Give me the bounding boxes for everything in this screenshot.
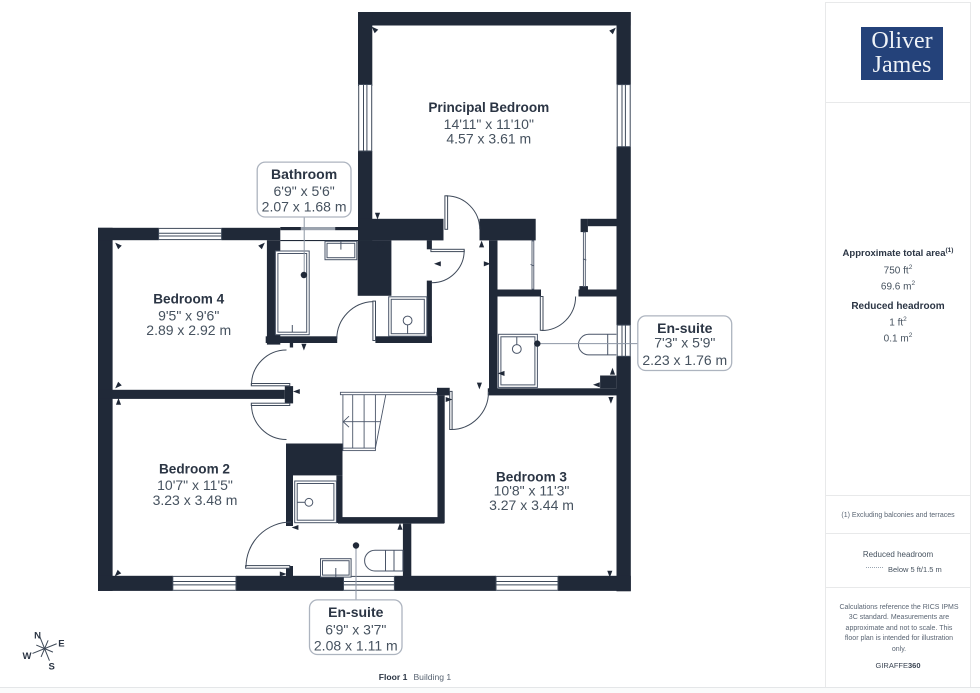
svg-text:3.27 x 3.44 m: 3.27 x 3.44 m bbox=[489, 497, 574, 513]
svg-text:2.89 x 2.92 m: 2.89 x 2.92 m bbox=[146, 322, 231, 338]
svg-text:Bathroom: Bathroom bbox=[271, 166, 337, 182]
svg-text:3.23 x 3.48 m: 3.23 x 3.48 m bbox=[153, 492, 238, 508]
svg-text:W: W bbox=[23, 651, 32, 662]
svg-text:En-suite: En-suite bbox=[328, 604, 383, 620]
svg-text:2.23 x 1.76 m: 2.23 x 1.76 m bbox=[642, 352, 727, 368]
svg-text:10'7" x 11'5": 10'7" x 11'5" bbox=[157, 477, 233, 493]
svg-text:En-suite: En-suite bbox=[657, 320, 712, 336]
svg-text:4.57 x 3.61 m: 4.57 x 3.61 m bbox=[446, 131, 531, 147]
svg-text:6'9" x 5'6": 6'9" x 5'6" bbox=[273, 183, 334, 199]
svg-text:Bedroom 2: Bedroom 2 bbox=[159, 462, 230, 477]
svg-text:Bedroom 4: Bedroom 4 bbox=[153, 291, 224, 306]
svg-text:2.07 x 1.68 m: 2.07 x 1.68 m bbox=[262, 199, 347, 215]
svg-text:6'9" x 3'7": 6'9" x 3'7" bbox=[325, 622, 386, 638]
svg-text:7'3" x 5'9": 7'3" x 5'9" bbox=[654, 335, 715, 351]
svg-text:2.08 x 1.11 m: 2.08 x 1.11 m bbox=[314, 638, 398, 654]
svg-text:S: S bbox=[49, 662, 55, 673]
svg-text:E: E bbox=[58, 639, 64, 650]
svg-text:Principal Bedroom: Principal Bedroom bbox=[428, 100, 549, 115]
svg-text:N: N bbox=[34, 631, 41, 642]
